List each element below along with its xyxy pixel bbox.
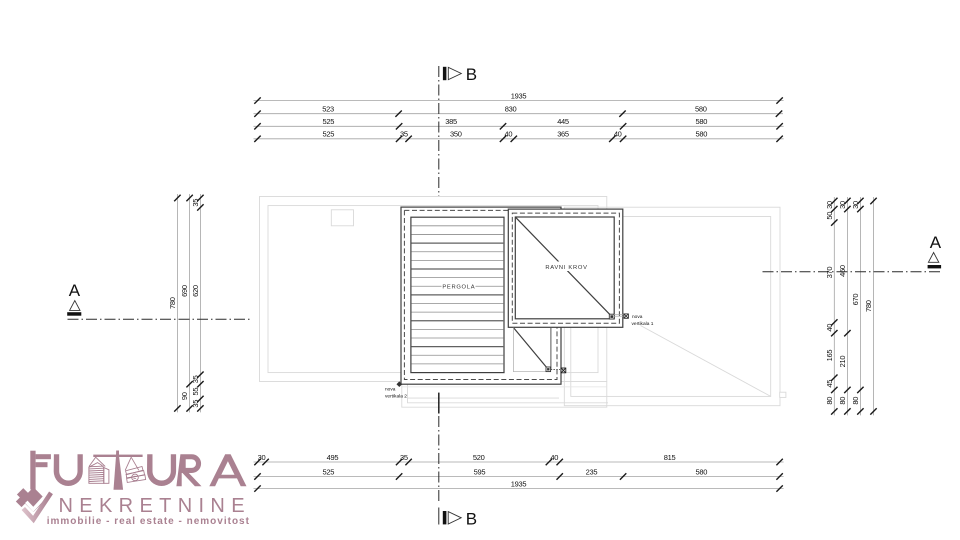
- svg-text:495: 495: [327, 453, 339, 462]
- svg-text:40: 40: [825, 324, 834, 332]
- svg-text:780: 780: [864, 300, 873, 312]
- svg-text:30: 30: [851, 201, 860, 209]
- svg-text:A: A: [69, 281, 81, 300]
- svg-text:35: 35: [400, 130, 408, 139]
- svg-text:235: 235: [586, 467, 598, 476]
- svg-text:525: 525: [322, 130, 334, 139]
- svg-text:55: 55: [191, 388, 200, 396]
- svg-text:690: 690: [180, 285, 189, 297]
- svg-text:40: 40: [550, 453, 558, 462]
- svg-text:580: 580: [695, 117, 707, 126]
- svg-text:30: 30: [825, 201, 834, 209]
- svg-text:620: 620: [191, 285, 200, 297]
- svg-text:40: 40: [505, 130, 513, 139]
- svg-text:80: 80: [825, 397, 834, 405]
- svg-text:80: 80: [851, 397, 860, 405]
- svg-text:nova: nova: [632, 315, 643, 320]
- svg-text:815: 815: [664, 453, 676, 462]
- svg-text:35: 35: [400, 453, 408, 462]
- svg-text:A: A: [930, 233, 942, 252]
- svg-text:370: 370: [825, 267, 834, 279]
- svg-text:165: 165: [825, 350, 834, 362]
- svg-text:350: 350: [450, 130, 462, 139]
- svg-text:30: 30: [258, 453, 266, 462]
- svg-text:PERGOLA: PERGOLA: [442, 284, 475, 290]
- svg-text:445: 445: [557, 117, 569, 126]
- svg-text:45: 45: [825, 380, 834, 388]
- svg-text:immobilie - real estate - nemo: immobilie - real estate - nemovitost: [47, 516, 250, 527]
- svg-text:vertikala 1: vertikala 1: [632, 321, 654, 327]
- svg-text:vertikala 2: vertikala 2: [385, 394, 407, 400]
- svg-text:50: 50: [825, 212, 834, 220]
- svg-text:830: 830: [505, 105, 517, 114]
- svg-text:90: 90: [180, 392, 189, 400]
- svg-text:385: 385: [445, 117, 457, 126]
- svg-text:210: 210: [838, 356, 847, 368]
- svg-text:40: 40: [614, 130, 622, 139]
- svg-text:B: B: [466, 509, 477, 528]
- svg-text:365: 365: [557, 130, 569, 139]
- svg-text:35: 35: [191, 400, 200, 408]
- svg-text:580: 580: [695, 130, 707, 139]
- svg-text:670: 670: [851, 294, 860, 306]
- svg-text:80: 80: [838, 397, 847, 405]
- svg-text:580: 580: [695, 105, 707, 114]
- svg-text:B: B: [466, 65, 477, 84]
- svg-text:1935: 1935: [511, 91, 527, 100]
- svg-text:NEKRETNINE: NEKRETNINE: [59, 495, 251, 517]
- svg-text:30: 30: [838, 201, 847, 209]
- svg-text:520: 520: [473, 453, 485, 462]
- svg-text:35: 35: [191, 375, 200, 383]
- svg-text:595: 595: [474, 467, 486, 476]
- svg-text:580: 580: [695, 467, 707, 476]
- svg-text:RAVNI KROV: RAVNI KROV: [545, 265, 587, 271]
- svg-text:nova: nova: [385, 388, 396, 393]
- svg-text:523: 523: [322, 105, 334, 114]
- svg-text:35: 35: [191, 199, 200, 207]
- svg-text:1935: 1935: [511, 479, 527, 488]
- svg-text:460: 460: [838, 265, 847, 277]
- svg-text:780: 780: [168, 297, 177, 309]
- svg-text:525: 525: [322, 117, 334, 126]
- svg-text:525: 525: [322, 467, 334, 476]
